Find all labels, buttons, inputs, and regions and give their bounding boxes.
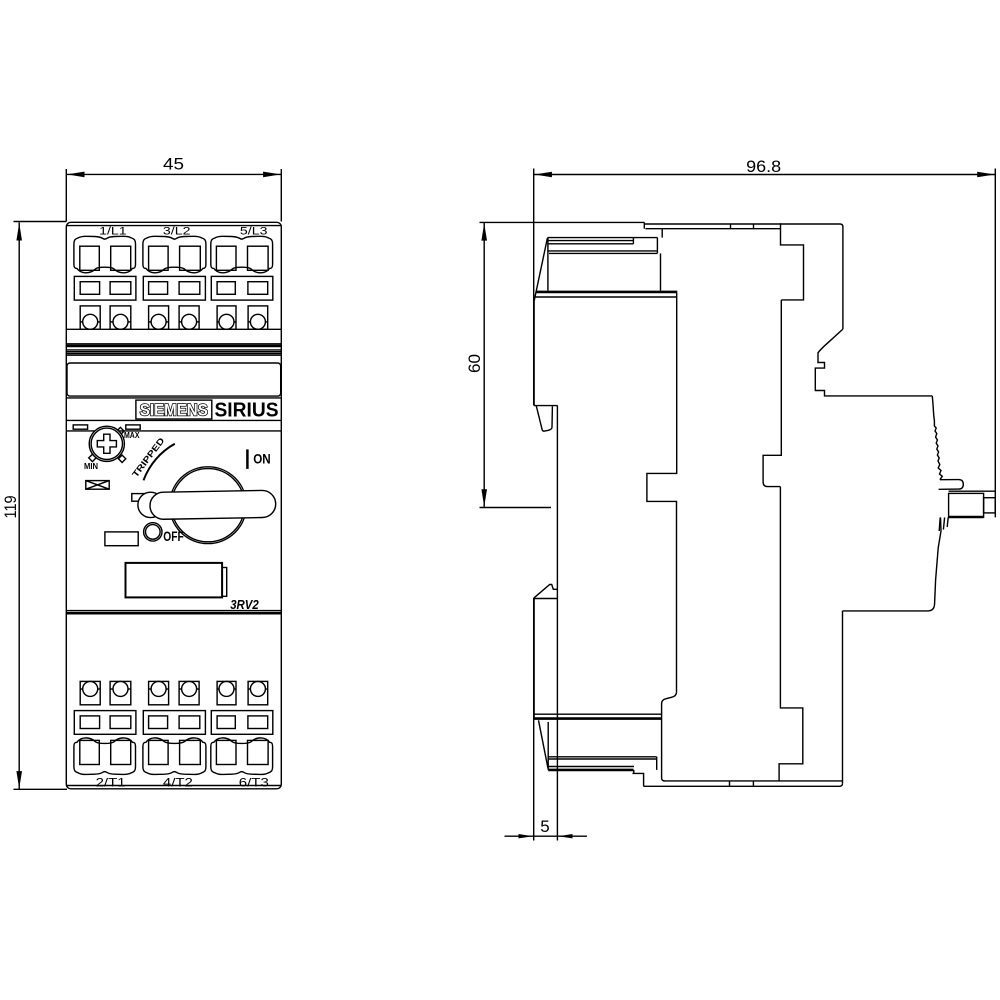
svg-text:119: 119 bbox=[1, 496, 20, 519]
svg-text:4/T2: 4/T2 bbox=[163, 775, 193, 789]
svg-text:ON: ON bbox=[253, 451, 271, 467]
svg-text:MAX: MAX bbox=[124, 431, 140, 440]
svg-text:3RV2: 3RV2 bbox=[230, 598, 259, 612]
svg-text:60: 60 bbox=[465, 354, 484, 373]
svg-text:6/T3: 6/T3 bbox=[239, 775, 269, 789]
svg-text:SIRIUS: SIRIUS bbox=[215, 400, 279, 422]
svg-text:96.8: 96.8 bbox=[746, 157, 781, 176]
svg-text:TRIPPED: TRIPPED bbox=[130, 436, 166, 480]
svg-text:MIN: MIN bbox=[84, 461, 98, 471]
svg-text:5: 5 bbox=[540, 817, 549, 836]
svg-text:45: 45 bbox=[163, 155, 184, 174]
svg-text:SIEMENS: SIEMENS bbox=[140, 401, 208, 419]
svg-text:OFF: OFF bbox=[163, 529, 184, 544]
svg-text:2/T1: 2/T1 bbox=[96, 775, 126, 789]
